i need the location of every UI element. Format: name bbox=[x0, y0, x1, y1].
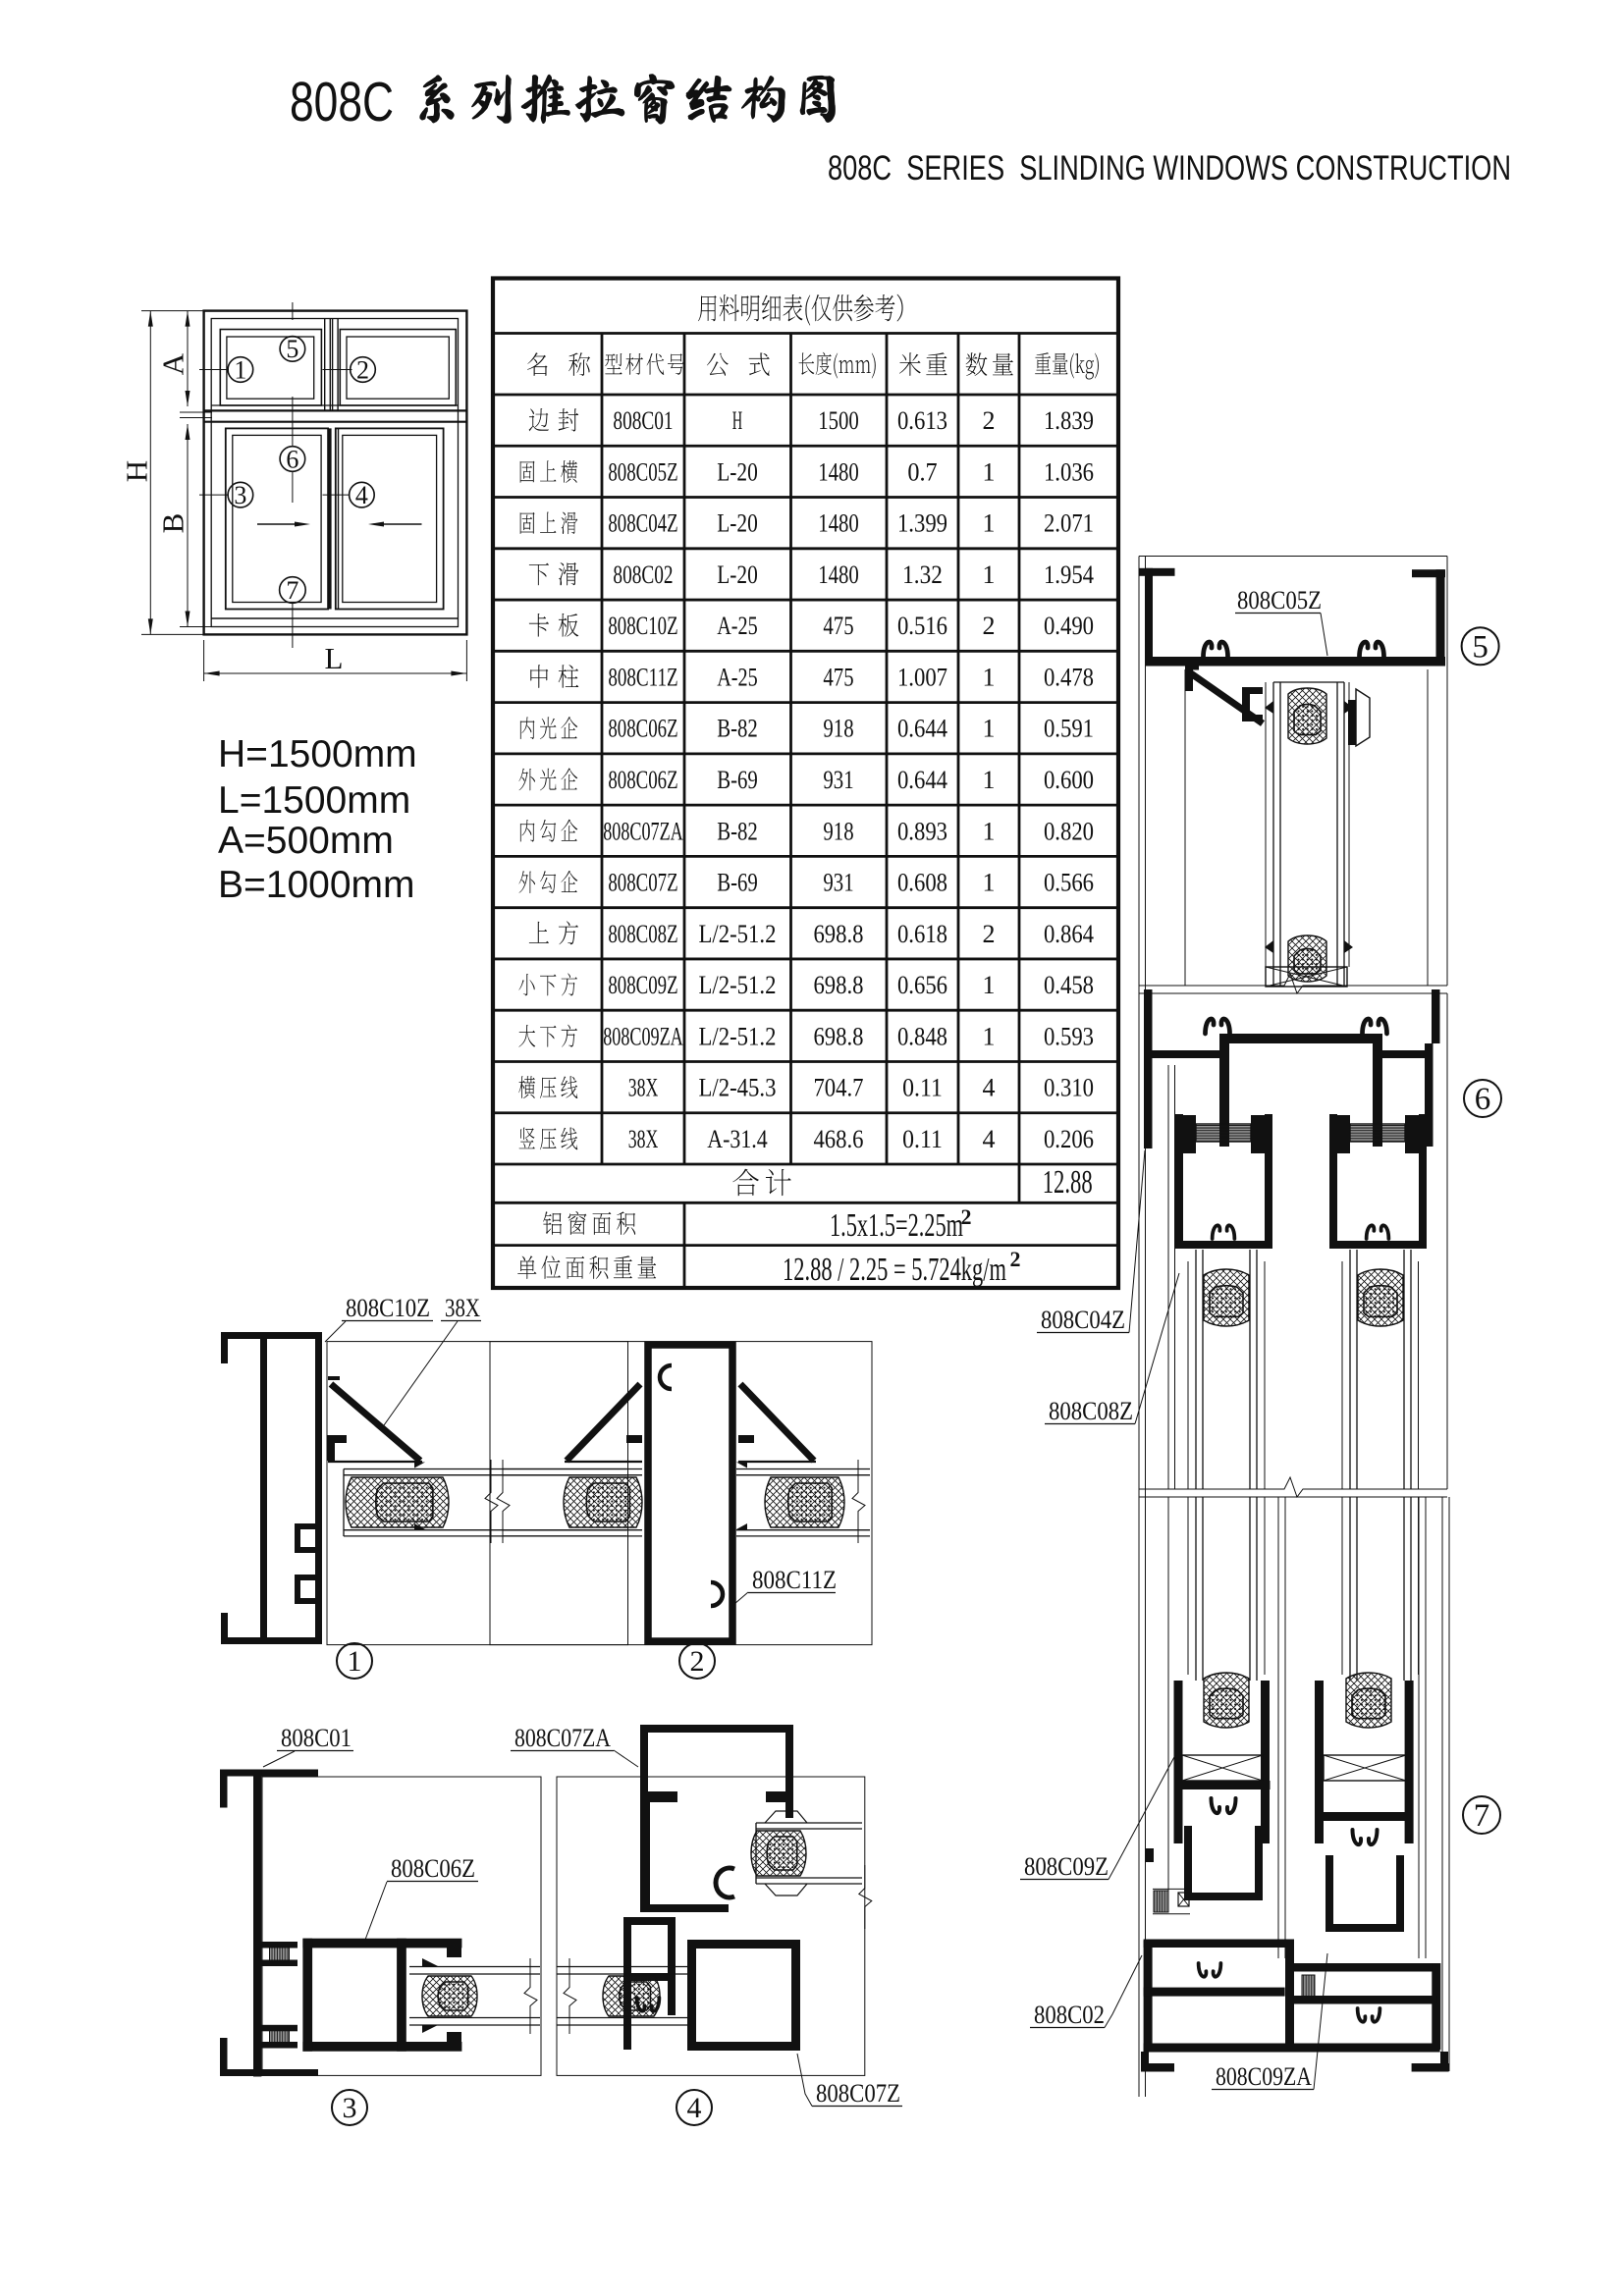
svg-text:1: 1 bbox=[983, 663, 996, 691]
svg-text:0.608: 0.608 bbox=[897, 869, 947, 897]
svg-text:1: 1 bbox=[983, 457, 996, 486]
svg-text:H: H bbox=[732, 406, 743, 435]
svg-text:L/2-51.2: L/2-51.2 bbox=[699, 1022, 777, 1050]
svg-text:808C05Z: 808C05Z bbox=[1237, 586, 1322, 614]
svg-text:L-20: L-20 bbox=[717, 561, 758, 589]
svg-text:0.613: 0.613 bbox=[897, 406, 947, 435]
svg-text:808C11Z: 808C11Z bbox=[752, 1566, 837, 1594]
svg-text:1500: 1500 bbox=[818, 406, 859, 435]
svg-text:L=1500mm: L=1500mm bbox=[218, 779, 410, 822]
svg-text:0.644: 0.644 bbox=[897, 715, 947, 743]
svg-text:7: 7 bbox=[1474, 1798, 1490, 1834]
svg-text:0.848: 0.848 bbox=[897, 1022, 947, 1050]
svg-text:0.11: 0.11 bbox=[902, 1125, 943, 1153]
svg-text:918: 918 bbox=[823, 715, 853, 743]
svg-text:918: 918 bbox=[823, 817, 853, 845]
svg-text:2: 2 bbox=[690, 1645, 705, 1678]
svg-text:931: 931 bbox=[823, 766, 853, 794]
svg-text:2: 2 bbox=[983, 612, 996, 640]
svg-text:B-69: B-69 bbox=[717, 869, 758, 897]
svg-text:A-31.4: A-31.4 bbox=[707, 1125, 768, 1153]
svg-text:1.839: 1.839 bbox=[1044, 406, 1094, 435]
svg-text:808C: 808C bbox=[290, 71, 394, 133]
svg-text:1480: 1480 bbox=[818, 509, 859, 538]
svg-text:0.11: 0.11 bbox=[902, 1074, 943, 1102]
svg-text:6: 6 bbox=[286, 445, 298, 473]
svg-text:L/2-45.3: L/2-45.3 bbox=[699, 1074, 777, 1102]
svg-text:808C06Z: 808C06Z bbox=[391, 1854, 475, 1883]
svg-text:0.618: 0.618 bbox=[897, 920, 947, 948]
svg-text:1: 1 bbox=[983, 817, 996, 845]
svg-text:808C09ZA: 808C09ZA bbox=[1216, 2062, 1312, 2091]
svg-text:1480: 1480 bbox=[818, 561, 859, 589]
svg-text:3: 3 bbox=[234, 481, 246, 509]
svg-text:808C10Z: 808C10Z bbox=[608, 612, 677, 640]
svg-text:2: 2 bbox=[1010, 1247, 1021, 1271]
svg-text:808C09Z: 808C09Z bbox=[608, 971, 677, 999]
svg-text:6: 6 bbox=[1475, 1082, 1491, 1117]
svg-text:B-82: B-82 bbox=[717, 715, 758, 743]
svg-text:0.310: 0.310 bbox=[1044, 1074, 1094, 1102]
svg-text:0.7: 0.7 bbox=[907, 457, 937, 486]
svg-text:808C SERIES SLINDING WINDOWS: 808C SERIES SLINDING WINDOWS CONSTRUCTIO… bbox=[828, 149, 1511, 187]
svg-text:808C01: 808C01 bbox=[613, 406, 673, 435]
svg-text:808C05Z: 808C05Z bbox=[608, 457, 677, 486]
svg-text:1.399: 1.399 bbox=[897, 509, 947, 538]
svg-text:808C07Z: 808C07Z bbox=[816, 2079, 900, 2108]
svg-text:698.8: 698.8 bbox=[813, 1022, 863, 1050]
svg-text:808C10Z: 808C10Z bbox=[346, 1294, 430, 1322]
svg-text:2: 2 bbox=[983, 406, 996, 435]
svg-text:808C09ZA: 808C09ZA bbox=[603, 1022, 683, 1050]
svg-text:808C01: 808C01 bbox=[281, 1724, 352, 1752]
svg-text:0.478: 0.478 bbox=[1044, 663, 1094, 691]
svg-text:0.458: 0.458 bbox=[1044, 971, 1094, 999]
svg-text:808C07ZA: 808C07ZA bbox=[603, 817, 683, 845]
svg-text:38X: 38X bbox=[445, 1294, 480, 1322]
svg-text:1: 1 bbox=[983, 715, 996, 743]
svg-text:704.7: 704.7 bbox=[813, 1074, 863, 1102]
svg-text:2: 2 bbox=[356, 355, 369, 384]
svg-text:698.8: 698.8 bbox=[813, 920, 863, 948]
svg-text:808C06Z: 808C06Z bbox=[608, 715, 677, 743]
svg-text:1.036: 1.036 bbox=[1044, 457, 1094, 486]
svg-text:0.516: 0.516 bbox=[897, 612, 947, 640]
svg-text:1: 1 bbox=[348, 1645, 362, 1678]
svg-text:1.007: 1.007 bbox=[897, 663, 947, 691]
svg-text:4: 4 bbox=[355, 481, 368, 509]
svg-text:L: L bbox=[325, 641, 344, 675]
svg-text:1: 1 bbox=[983, 869, 996, 897]
svg-text:0.864: 0.864 bbox=[1044, 920, 1094, 948]
svg-text:1480: 1480 bbox=[818, 457, 859, 486]
svg-text:38X: 38X bbox=[628, 1074, 659, 1102]
svg-text:0.490: 0.490 bbox=[1044, 612, 1094, 640]
svg-text:H: H bbox=[120, 460, 154, 482]
svg-text:1.32: 1.32 bbox=[902, 561, 943, 589]
svg-text:931: 931 bbox=[823, 869, 853, 897]
svg-text:808C07ZA: 808C07ZA bbox=[514, 1724, 611, 1752]
svg-text:0.656: 0.656 bbox=[897, 971, 947, 999]
svg-text:1: 1 bbox=[983, 971, 996, 999]
svg-text:0.644: 0.644 bbox=[897, 766, 947, 794]
svg-text:1: 1 bbox=[983, 509, 996, 538]
svg-text:B-69: B-69 bbox=[717, 766, 758, 794]
svg-text:2: 2 bbox=[983, 920, 996, 948]
svg-text:5: 5 bbox=[286, 335, 298, 363]
svg-text:0.591: 0.591 bbox=[1044, 715, 1094, 743]
svg-text:808C09Z: 808C09Z bbox=[1024, 1852, 1109, 1881]
svg-text:5: 5 bbox=[1472, 630, 1488, 666]
svg-text:2.071: 2.071 bbox=[1044, 509, 1094, 538]
svg-text:A=500mm: A=500mm bbox=[218, 820, 394, 862]
svg-text:468.6: 468.6 bbox=[813, 1125, 863, 1153]
svg-text:H=1500mm: H=1500mm bbox=[218, 733, 417, 775]
svg-text:0.893: 0.893 bbox=[897, 817, 947, 845]
svg-text:L-20: L-20 bbox=[717, 457, 758, 486]
svg-text:808C11Z: 808C11Z bbox=[608, 663, 677, 691]
svg-text:A-25: A-25 bbox=[717, 612, 758, 640]
svg-text:7: 7 bbox=[286, 576, 298, 605]
svg-text:L/2-51.2: L/2-51.2 bbox=[699, 971, 777, 999]
svg-text:1: 1 bbox=[983, 766, 996, 794]
svg-text:L/2-51.2: L/2-51.2 bbox=[699, 920, 777, 948]
svg-text:808C06Z: 808C06Z bbox=[608, 766, 677, 794]
svg-text:A: A bbox=[156, 352, 190, 375]
svg-text:0.593: 0.593 bbox=[1044, 1022, 1094, 1050]
svg-text:0.206: 0.206 bbox=[1044, 1125, 1094, 1153]
svg-text:A-25: A-25 bbox=[717, 663, 758, 691]
svg-text:808C08Z: 808C08Z bbox=[608, 920, 677, 948]
svg-text:38X: 38X bbox=[628, 1125, 659, 1153]
svg-text:698.8: 698.8 bbox=[813, 971, 863, 999]
svg-text:808C02: 808C02 bbox=[1034, 2001, 1105, 2029]
svg-text:2: 2 bbox=[961, 1204, 972, 1229]
svg-text:808C07Z: 808C07Z bbox=[608, 869, 677, 897]
svg-text:1.5x1.5=2.25m: 1.5x1.5=2.25m bbox=[830, 1207, 963, 1244]
svg-text:808C04Z: 808C04Z bbox=[608, 509, 677, 538]
svg-text:808C08Z: 808C08Z bbox=[1049, 1397, 1133, 1425]
svg-text:1: 1 bbox=[234, 355, 246, 384]
svg-text:1: 1 bbox=[983, 1022, 996, 1050]
svg-text:4: 4 bbox=[687, 2092, 702, 2124]
svg-text:12.88 / 2.25 = 5.724kg/m: 12.88 / 2.25 = 5.724kg/m bbox=[783, 1252, 1006, 1288]
svg-text:475: 475 bbox=[823, 663, 853, 691]
svg-text:808C04Z: 808C04Z bbox=[1041, 1306, 1125, 1334]
svg-text:0.566: 0.566 bbox=[1044, 869, 1094, 897]
svg-text:12.88: 12.88 bbox=[1043, 1164, 1093, 1201]
svg-text:3: 3 bbox=[343, 2092, 357, 2124]
svg-text:4: 4 bbox=[983, 1125, 996, 1153]
svg-text:0.600: 0.600 bbox=[1044, 766, 1094, 794]
svg-text:B-82: B-82 bbox=[717, 817, 758, 845]
svg-text:0.820: 0.820 bbox=[1044, 817, 1094, 845]
svg-text:475: 475 bbox=[823, 612, 853, 640]
svg-text:1: 1 bbox=[983, 561, 996, 589]
svg-text:B: B bbox=[156, 513, 190, 534]
svg-text:B=1000mm: B=1000mm bbox=[218, 864, 415, 906]
svg-text:1.954: 1.954 bbox=[1044, 561, 1094, 589]
svg-text:808C02: 808C02 bbox=[613, 561, 673, 589]
svg-text:4: 4 bbox=[983, 1074, 996, 1102]
svg-text:L-20: L-20 bbox=[717, 509, 758, 538]
